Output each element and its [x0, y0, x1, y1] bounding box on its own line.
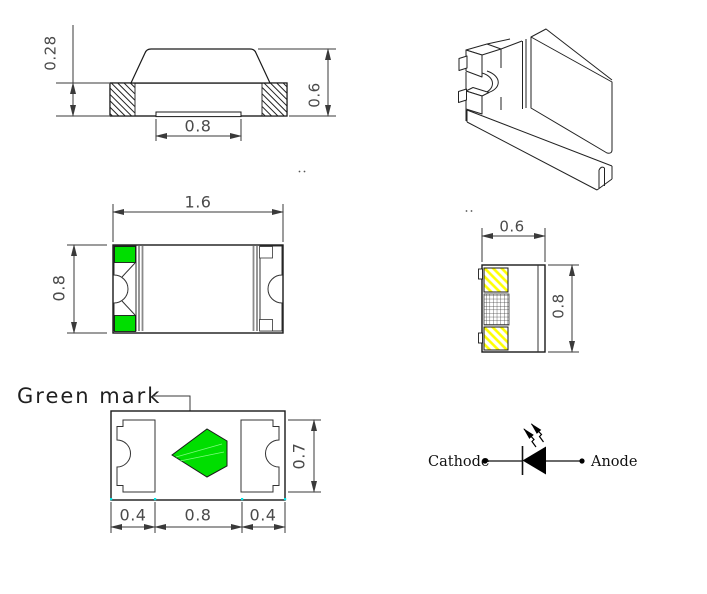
anode-terminal-dot	[579, 458, 584, 463]
side-view: 0.28 0.6 0.8	[42, 25, 337, 141]
right-pad-notch-bottom	[260, 320, 273, 332]
dim-text-0-4-right: 0.4	[250, 506, 277, 525]
light-emission-arrow-1	[524, 429, 536, 447]
end-pad-top	[484, 268, 508, 292]
iso-cap-tab-lower	[459, 89, 467, 103]
dim-text-0-8-end: 0.8	[550, 293, 568, 318]
end-pad-bottom	[484, 327, 508, 350]
dim-width: 0.8	[50, 245, 108, 333]
dim-text-1-6: 1.6	[185, 193, 212, 212]
end-view: 0.6 0.8	[479, 218, 580, 353]
dim-length: 1.6	[113, 193, 283, 243]
iso-body-front-face	[531, 37, 612, 153]
led-circuit-symbol: Cathode Anode	[428, 424, 637, 475]
dim-end-width: 0.6	[482, 218, 545, 263]
dim-base-height: 0.28	[42, 25, 110, 116]
isometric-view	[459, 29, 613, 190]
dim-text-0-8-center: 0.8	[185, 506, 212, 525]
stray-marks	[299, 171, 473, 212]
dim-text-0-4-left: 0.4	[120, 506, 147, 525]
dim-recess-width: 0.8	[156, 117, 241, 142]
dim-text-0-28: 0.28	[42, 35, 60, 70]
dim-pad-height: 0.7	[288, 420, 321, 492]
dim-text-0-6-end: 0.6	[499, 218, 524, 236]
dim-text-0-6-side: 0.6	[306, 82, 324, 107]
drawing-canvas: 0.28 0.6 0.8	[0, 0, 707, 594]
end-tab-bottom	[479, 333, 483, 343]
dim-text-0-7: 0.7	[290, 443, 309, 470]
end-substrate-crosshatch	[484, 294, 509, 325]
led-package-drawing: 0.28 0.6 0.8	[0, 0, 707, 594]
lens-body	[131, 49, 270, 83]
substrate-end-left	[110, 83, 135, 116]
substrate-crosshatch	[110, 83, 287, 116]
dim-end-height: 0.8	[548, 265, 579, 352]
dim-bottom-row: 0.4 0.8 0.4	[110, 498, 286, 533]
bottom-view: Green mark 0.7 0.4 0.8 0.4	[17, 384, 321, 533]
end-tab-top	[479, 269, 483, 279]
green-mark-label: Green mark	[17, 384, 161, 408]
iso-cap-tab-upper	[459, 56, 467, 71]
green-mark-top-left	[115, 247, 136, 263]
diode-triangle	[523, 447, 547, 475]
cathode-terminal-dot	[482, 458, 487, 463]
dim-text-0-8-recess: 0.8	[185, 117, 212, 136]
anode-label: Anode	[590, 454, 637, 470]
substrate-end-right	[262, 83, 287, 116]
right-pad-notch-top	[260, 247, 273, 259]
dim-text-0-8-top: 0.8	[50, 275, 69, 302]
top-view: 1.6 0.8	[50, 193, 284, 334]
green-mark-bottom-left	[115, 316, 136, 332]
cathode-label: Cathode	[428, 454, 490, 470]
